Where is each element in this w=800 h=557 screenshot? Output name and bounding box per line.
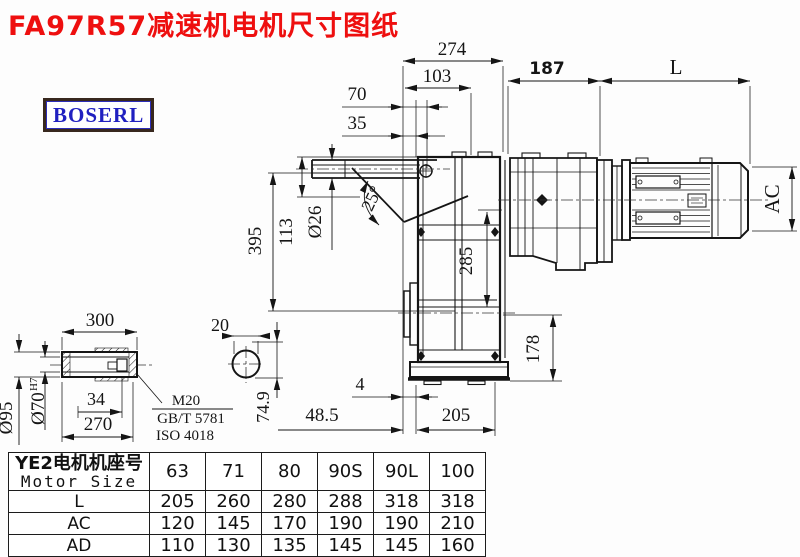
- note-gbt5781: GB/T 5781: [157, 411, 225, 427]
- dim-34-label: 34: [87, 389, 105, 409]
- cell-AD-90s: 145: [318, 535, 374, 557]
- table-header-size-71: 71: [206, 453, 262, 491]
- key-section-view: [222, 322, 283, 398]
- dim-300-label: 300: [86, 310, 115, 331]
- row-label-L: L: [9, 491, 150, 513]
- dim-48p5-label: 48.5: [305, 405, 338, 426]
- dim-L-label: L: [670, 55, 683, 79]
- motor: [630, 158, 748, 238]
- table-row-AD: AD 110 130 135 145 145 160: [9, 535, 486, 557]
- dim-113-label: 113: [276, 218, 297, 246]
- drawing-sheet: FA97R57减速机电机尺寸图纸 BOSERL: [0, 0, 800, 555]
- table-header-size-100: 100: [430, 453, 486, 491]
- cell-L-90l: 318: [374, 491, 430, 513]
- dim-20-label: 20: [211, 315, 229, 335]
- cell-L-90s: 288: [318, 491, 374, 513]
- cell-AD-80: 135: [262, 535, 318, 557]
- dim-205-label: 205: [442, 405, 471, 426]
- dim-270-label: 270: [84, 414, 113, 435]
- dim-285-label: 285: [456, 247, 477, 276]
- cell-AD-63: 110: [150, 535, 206, 557]
- r57-reducer: [510, 153, 630, 270]
- row-label-AC: AC: [9, 513, 150, 535]
- dim-70h7-sup: H7: [28, 377, 40, 391]
- cell-AC-71: 145: [206, 513, 262, 535]
- table-row-L: L 205 260 280 288 318 318: [9, 491, 486, 513]
- cell-L-63: 205: [150, 491, 206, 513]
- cell-AD-100: 160: [430, 535, 486, 557]
- dim-103-label: 103: [423, 66, 452, 87]
- dim-AC-label: AC: [760, 184, 784, 213]
- cell-L-71: 260: [206, 491, 262, 513]
- dim-25deg-label: 25°: [357, 183, 386, 214]
- cell-AC-63: 120: [150, 513, 206, 535]
- dim-274-label: 274: [438, 39, 467, 60]
- dim-395-label: 395: [245, 227, 266, 256]
- dim-187-label: 187: [529, 59, 565, 79]
- table-header-size-90s: 90S: [318, 453, 374, 491]
- dim-4-label: 4: [356, 374, 365, 394]
- cell-L-100: 318: [430, 491, 486, 513]
- cell-AD-90l: 145: [374, 535, 430, 557]
- table-row-AC: AC 120 145 170 190 190 210: [9, 513, 486, 535]
- gearbox-housing: [312, 152, 510, 385]
- motor-size-cn: YE2电机机座号: [9, 454, 149, 473]
- motor-size-en: Motor Size: [9, 473, 149, 490]
- cell-L-80: 280: [262, 491, 318, 513]
- row-label-AD: AD: [9, 535, 150, 557]
- dim-74p9-label: 74.9: [253, 391, 273, 423]
- table-header-size-80: 80: [262, 453, 318, 491]
- motor-size-table: YE2电机机座号 Motor Size 63 71 80 90S 90L 100…: [8, 452, 486, 557]
- cell-AC-90s: 190: [318, 513, 374, 535]
- dim-70-label: 70: [348, 84, 367, 105]
- centerlines: [50, 169, 768, 383]
- cell-AC-100: 210: [430, 513, 486, 535]
- note-m20: M20: [172, 393, 200, 409]
- table-header-size-90l: 90L: [374, 453, 430, 491]
- cell-AC-80: 170: [262, 513, 318, 535]
- dim-26-label: Ø26: [305, 206, 326, 239]
- dim-35-label: 35: [348, 113, 367, 134]
- dimension-labels: 274 103 70 35 187 L AC 395 113 Ø26 25° 2…: [0, 39, 784, 444]
- table-header-motor-size: YE2电机机座号 Motor Size: [9, 453, 150, 491]
- dim-70h7-label: Ø70 H7: [28, 377, 49, 425]
- dim-178-label: 178: [523, 335, 544, 364]
- cell-AD-71: 130: [206, 535, 262, 557]
- note-iso4018: ISO 4018: [156, 428, 214, 444]
- dim-95-label: Ø95: [0, 402, 17, 435]
- cell-AC-90l: 190: [374, 513, 430, 535]
- svg-text:Ø70: Ø70: [28, 392, 49, 425]
- table-header-size-63: 63: [150, 453, 206, 491]
